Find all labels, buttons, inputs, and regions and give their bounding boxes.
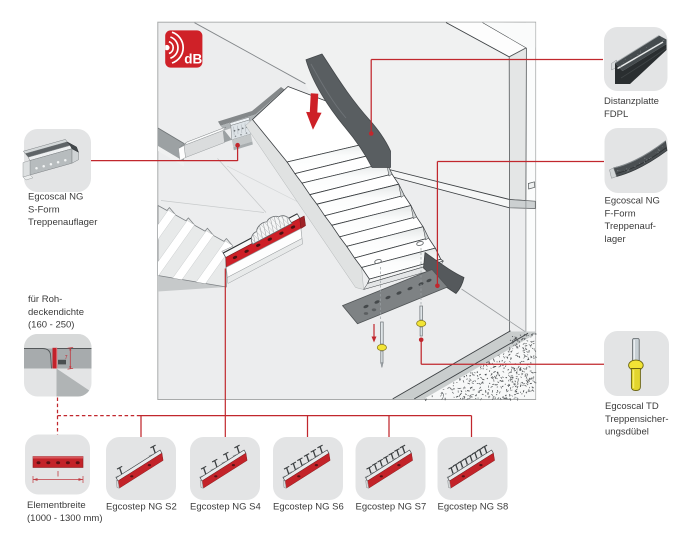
svg-text:7: 7 bbox=[65, 355, 68, 361]
svg-text:Distanzplatte: Distanzplatte bbox=[604, 96, 659, 107]
svg-text:Egcoscal NG: Egcoscal NG bbox=[28, 192, 83, 203]
svg-text:Egcostep NG S7: Egcostep NG S7 bbox=[356, 502, 427, 513]
svg-text:Egcostep NG S6: Egcostep NG S6 bbox=[273, 502, 344, 513]
svg-text:Treppensicher-: Treppensicher- bbox=[605, 414, 669, 425]
svg-text:dB: dB bbox=[184, 51, 202, 66]
svg-text:Elementbreite: Elementbreite bbox=[27, 500, 86, 511]
svg-text:Egcoscal NG: Egcoscal NG bbox=[605, 196, 660, 207]
svg-text:Egcostep NG S8: Egcostep NG S8 bbox=[438, 502, 509, 513]
svg-text:F-Form: F-Form bbox=[605, 208, 636, 219]
svg-text:S-Form: S-Form bbox=[28, 204, 60, 215]
svg-text:Egcostep NG S4: Egcostep NG S4 bbox=[190, 502, 261, 513]
svg-text:Treppenauf-: Treppenauf- bbox=[605, 221, 656, 232]
svg-text:Egcoscal TD: Egcoscal TD bbox=[605, 401, 659, 412]
svg-text:(1000 - 1300 mm): (1000 - 1300 mm) bbox=[27, 513, 103, 524]
svg-text:Treppenauflager: Treppenauflager bbox=[28, 217, 97, 228]
svg-text:FDPL: FDPL bbox=[604, 109, 628, 120]
svg-text:deckendichte: deckendichte bbox=[28, 307, 84, 318]
svg-text:(160 - 250): (160 - 250) bbox=[28, 320, 74, 331]
svg-text:für Roh-: für Roh- bbox=[28, 294, 62, 305]
svg-text:ungsdübel: ungsdübel bbox=[605, 427, 649, 438]
svg-text:Egcostep NG S2: Egcostep NG S2 bbox=[106, 502, 177, 513]
svg-text:lager: lager bbox=[605, 234, 626, 245]
